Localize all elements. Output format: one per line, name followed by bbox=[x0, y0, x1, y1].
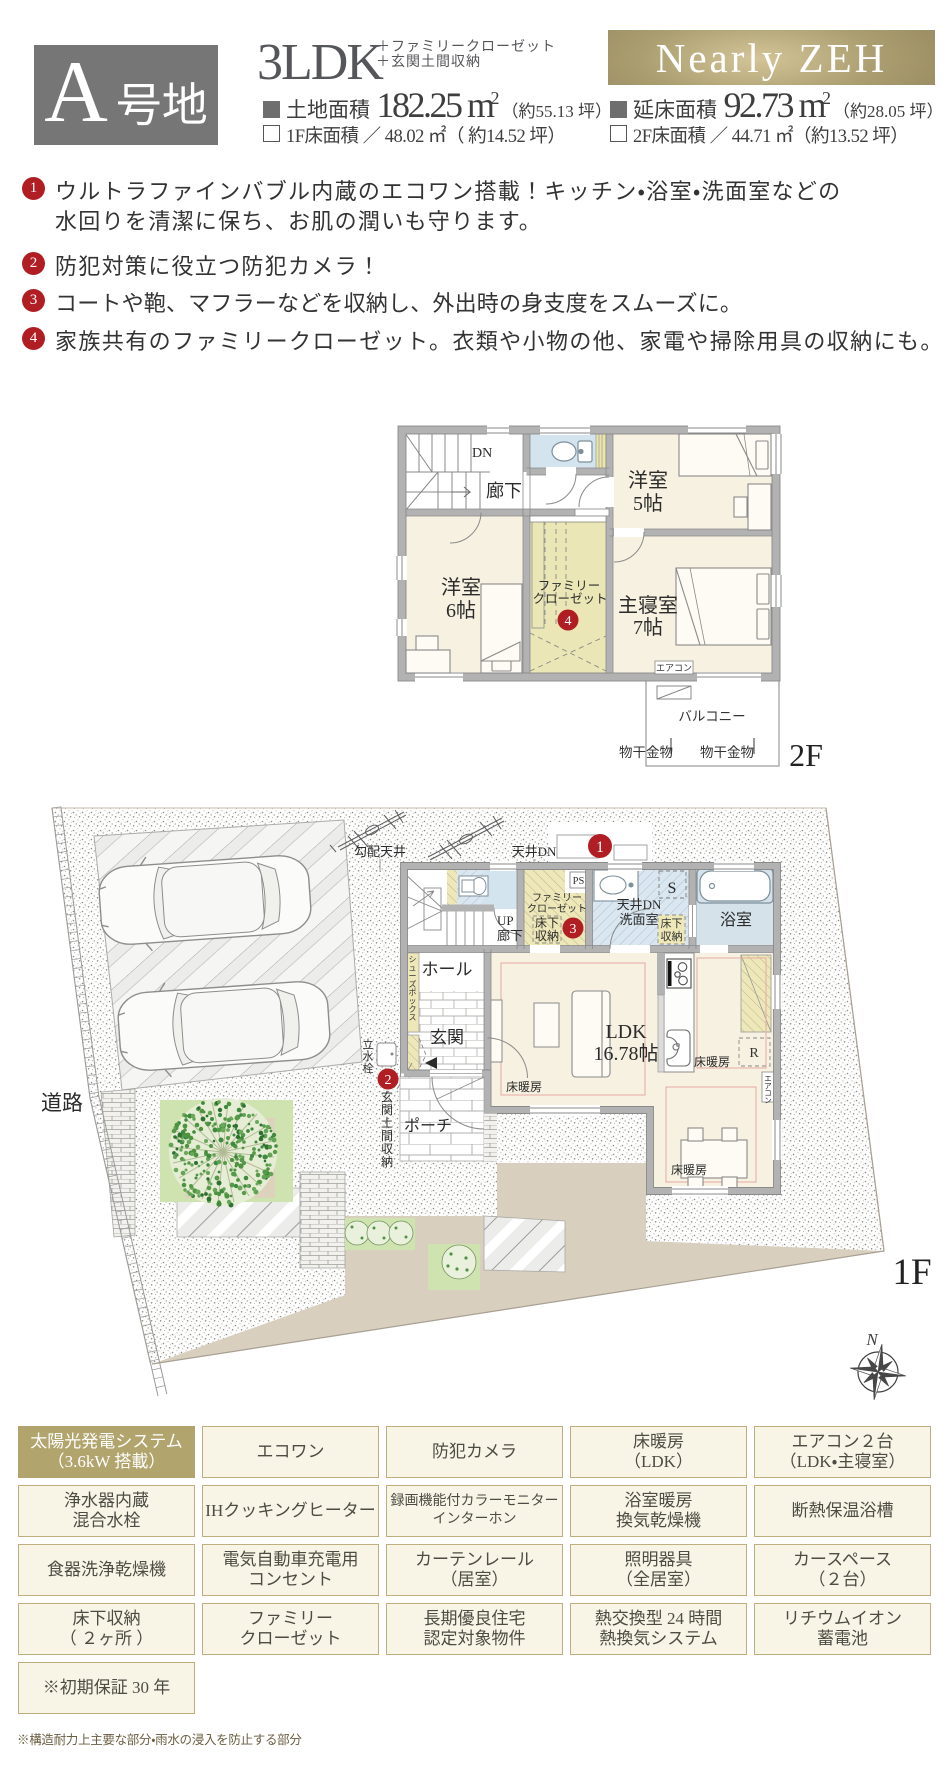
svg-text:エアコン: エアコン bbox=[656, 663, 692, 673]
svg-text:LDK: LDK bbox=[605, 1021, 647, 1043]
svg-text:ファミリー: ファミリー bbox=[532, 893, 582, 904]
svg-text:シューズボックス: シューズボックス bbox=[409, 955, 417, 1022]
svg-text:床下: 床下 bbox=[661, 917, 683, 930]
svg-text:ファミリー: ファミリー bbox=[538, 579, 601, 593]
svg-text:4: 4 bbox=[565, 614, 572, 629]
svg-text:立水栓: 立水栓 bbox=[363, 1037, 374, 1075]
svg-text:ホール: ホール bbox=[422, 960, 473, 979]
svg-text:洗面室: 洗面室 bbox=[619, 912, 658, 927]
svg-text:1: 1 bbox=[596, 839, 604, 856]
svg-text:洋室: 洋室 bbox=[628, 469, 668, 492]
svg-text:床暖房: 床暖房 bbox=[671, 1163, 707, 1177]
svg-text:ポーチ: ポーチ bbox=[404, 1117, 452, 1135]
svg-text:床暖房: 床暖房 bbox=[506, 1080, 542, 1094]
svg-text:道路: 道路 bbox=[41, 1091, 83, 1115]
svg-text:エアコン: エアコン bbox=[764, 1074, 772, 1105]
svg-text:洋室: 洋室 bbox=[441, 576, 481, 599]
svg-text:物干金物: 物干金物 bbox=[619, 745, 673, 760]
svg-text:2F: 2F bbox=[789, 737, 823, 773]
svg-text:16.78帖: 16.78帖 bbox=[594, 1042, 659, 1065]
svg-text:廊下: 廊下 bbox=[497, 928, 523, 943]
svg-text:天井DN: 天井DN bbox=[512, 844, 557, 859]
svg-text:収納: 収納 bbox=[661, 929, 683, 943]
svg-text:UP: UP bbox=[497, 913, 514, 928]
svg-text:S: S bbox=[668, 880, 677, 897]
svg-text:玄関土間収納: 玄関土間収納 bbox=[381, 1090, 393, 1169]
svg-text:DN: DN bbox=[472, 446, 492, 461]
svg-text:クローゼット: クローゼット bbox=[532, 592, 607, 606]
svg-text:7帖: 7帖 bbox=[633, 616, 663, 639]
svg-text:物干金物: 物干金物 bbox=[700, 745, 754, 760]
svg-text:勾配天井: 勾配天井 bbox=[354, 844, 406, 859]
svg-text:R: R bbox=[749, 1046, 759, 1061]
svg-text:玄関: 玄関 bbox=[430, 1028, 464, 1047]
svg-text:3: 3 bbox=[570, 922, 577, 937]
svg-text:クローゼット: クローゼット bbox=[527, 903, 587, 915]
svg-text:2: 2 bbox=[385, 1073, 392, 1088]
svg-text:N: N bbox=[865, 1330, 879, 1349]
svg-text:廊下: 廊下 bbox=[486, 481, 522, 501]
svg-text:PS: PS bbox=[573, 876, 585, 887]
svg-text:バルコニー: バルコニー bbox=[678, 709, 745, 724]
svg-text:床下: 床下 bbox=[535, 916, 559, 930]
svg-text:1F: 1F bbox=[892, 1252, 931, 1293]
svg-text:浴室: 浴室 bbox=[720, 911, 752, 929]
svg-text:収納: 収納 bbox=[535, 928, 559, 943]
svg-text:6帖: 6帖 bbox=[446, 599, 476, 622]
svg-text:床暖房: 床暖房 bbox=[694, 1055, 730, 1069]
svg-text:天井DN: 天井DN bbox=[617, 897, 662, 912]
svg-text:5帖: 5帖 bbox=[633, 492, 663, 515]
svg-text:主寝室: 主寝室 bbox=[618, 594, 678, 617]
